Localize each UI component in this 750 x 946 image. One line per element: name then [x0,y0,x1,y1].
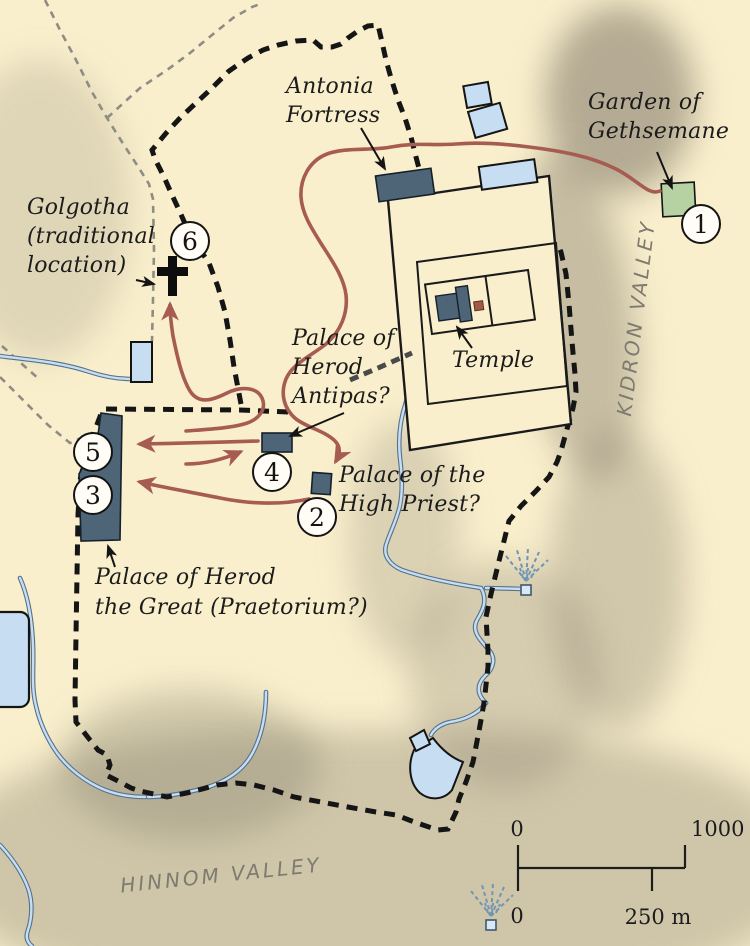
second-wall-path [152,25,421,404]
spring-icon-legend [471,883,513,930]
golgotha-cross-icon [157,256,188,296]
map-canvas [0,0,750,946]
route-marker-5: 5 [73,432,113,472]
road-northeast [107,3,263,118]
herod-great-label-arrow [108,546,115,567]
route-marker-1: 1 [681,204,721,244]
route-marker-4: 4 [252,452,292,492]
golgotha-label-arrow [136,280,154,284]
towers-pool [131,342,152,382]
route-marker-3: 3 [73,475,113,515]
bethesda-pool-north [463,82,491,108]
altar [474,301,484,311]
road-southwest [0,377,92,443]
road-west [2,346,40,380]
road-north-gate [45,0,154,341]
gethsemane-label-arrow [657,152,672,188]
route-leg-3-to-antipas [186,452,240,464]
scale-bar [518,845,685,891]
herod-antipas-palace-building [262,433,292,452]
jerusalem-map: Antonia Fortress Garden of Gethsemane Go… [0,0,750,946]
route-marker-6: 6 [170,221,210,261]
bethesda-pool-south [468,103,507,138]
route-leg-4-back-to-herod-great [140,441,258,444]
west-pool [0,612,29,707]
temple-platform [388,176,571,450]
high-priest-palace-building [311,472,331,494]
route-marker-2: 2 [297,497,337,537]
antipas-label-arrow [290,413,344,436]
